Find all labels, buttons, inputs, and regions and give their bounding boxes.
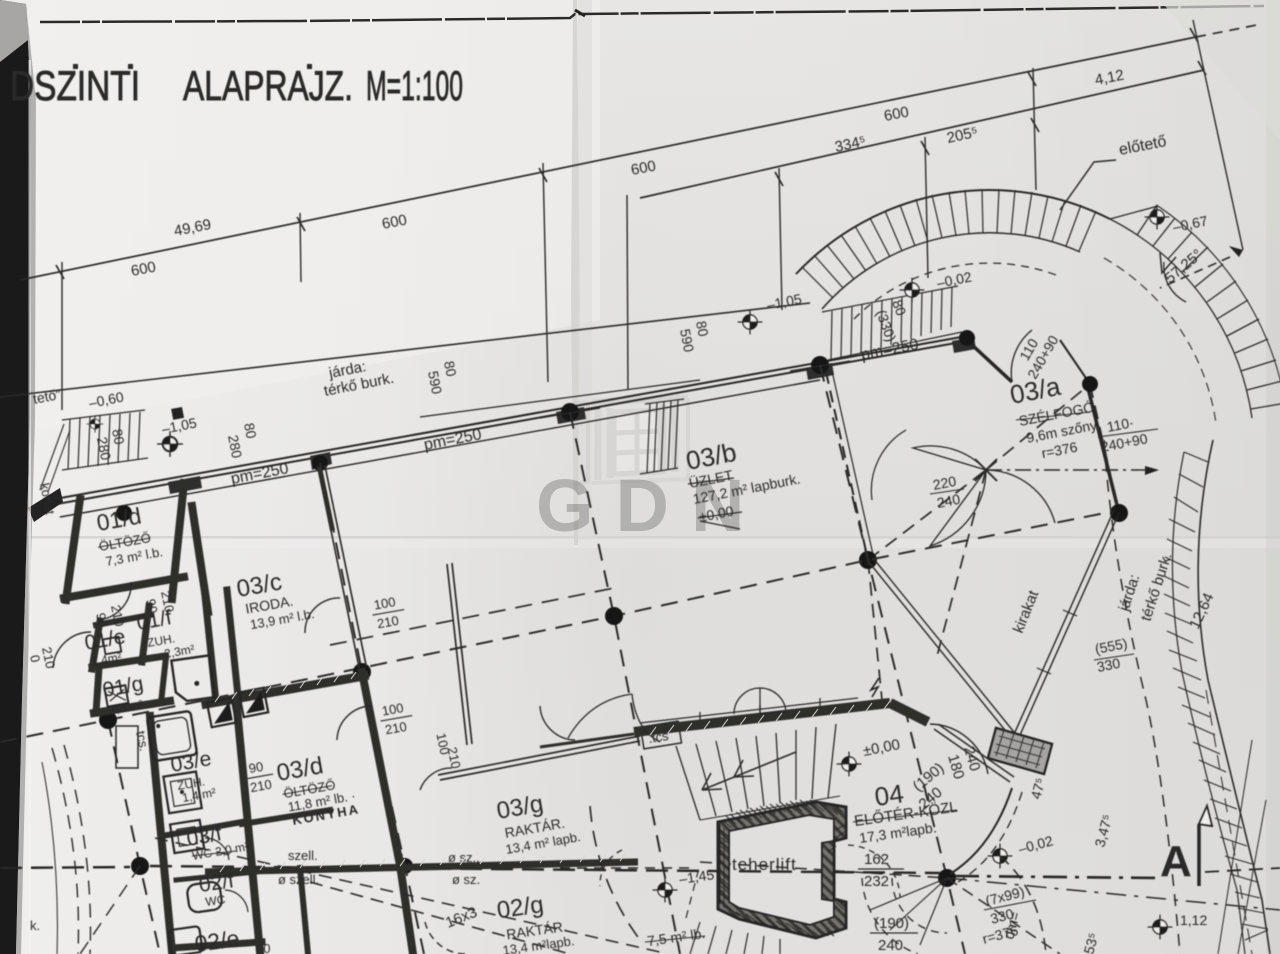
svg-text:A: A — [1160, 837, 1192, 886]
svg-text:teherlift: teherlift — [732, 855, 797, 874]
svg-text:ø szell.: ø szell. — [278, 872, 319, 887]
svg-text:M=1:100: M=1:100 — [366, 62, 463, 109]
svg-text:90: 90 — [256, 941, 270, 954]
svg-text:80: 80 — [441, 360, 460, 379]
svg-text:WC: WC — [204, 892, 226, 909]
svg-text:ALAPRAJZ.: ALAPRAJZ. — [183, 62, 353, 109]
svg-text:90: 90 — [248, 759, 265, 776]
svg-text:02/e: 02/e — [193, 925, 241, 954]
svg-text:240: 240 — [878, 937, 903, 954]
svg-text:k.: k. — [30, 918, 40, 933]
svg-text:162: 162 — [864, 851, 889, 868]
svg-text:232: 232 — [864, 873, 889, 890]
svg-text:80: 80 — [693, 320, 712, 339]
svg-text:szell.: szell. — [288, 848, 318, 863]
svg-text:1,12: 1,12 — [1180, 912, 1207, 928]
svg-text:ø sz.: ø sz. — [452, 872, 480, 887]
svg-text:90: 90 — [93, 612, 111, 629]
svg-text:DSZINTI: DSZINTI — [10, 62, 140, 109]
svg-text:90: 90 — [143, 598, 161, 615]
svg-text:80: 80 — [241, 422, 260, 441]
svg-text:ø sz.,: ø sz., — [448, 850, 480, 865]
